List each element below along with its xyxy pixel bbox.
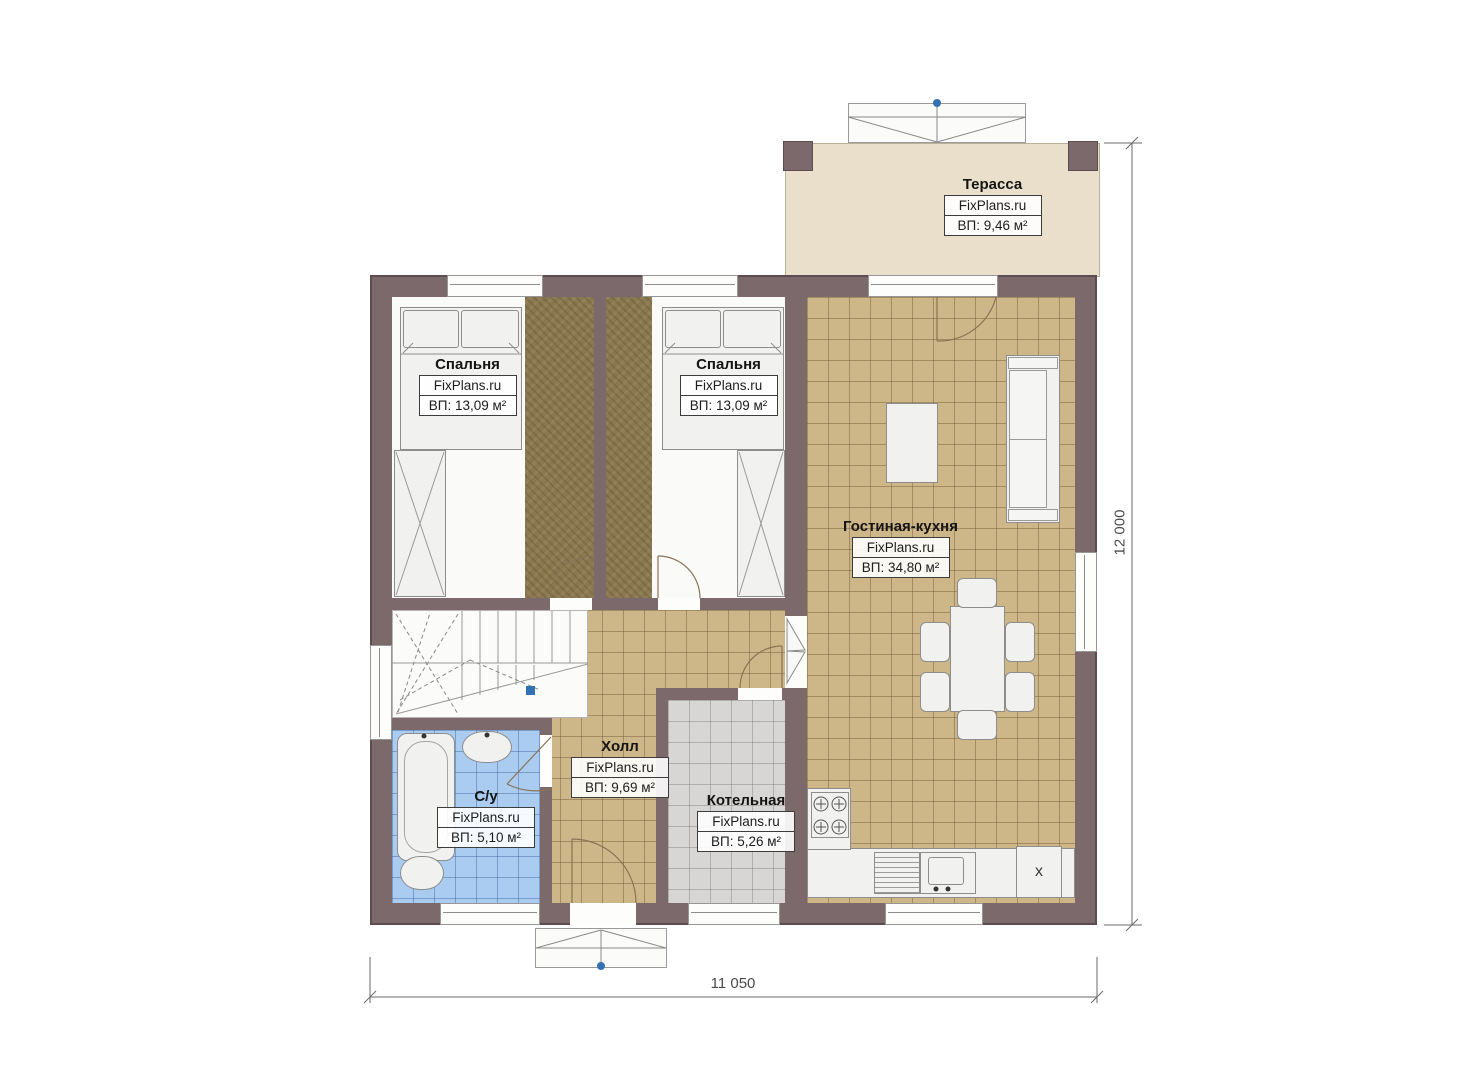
terrace-post-left <box>783 141 813 171</box>
room-label-bedroom2: Спальня FixPlans.ru ВП: 13,09 м² <box>666 356 791 416</box>
brand-link[interactable]: FixPlans.ru <box>853 538 949 558</box>
entrance-steps <box>535 928 667 968</box>
pillow <box>665 310 721 348</box>
room-label-box: FixPlans.ru ВП: 9,46 м² <box>944 195 1042 236</box>
room-area: ВП: 9,46 м² <box>945 216 1041 235</box>
pillow <box>403 310 459 348</box>
room-label-terrace: Терасса FixPlans.ru ВП: 9,46 м² <box>930 176 1055 236</box>
window-living-right <box>1075 552 1097 652</box>
wardrobe-1 <box>394 450 446 597</box>
wall-boiler-left <box>656 700 668 903</box>
pillow <box>723 310 781 348</box>
stove <box>811 792 849 838</box>
room-label-box: FixPlans.ru ВП: 34,80 м² <box>852 537 950 578</box>
room-label-box: FixPlans.ru ВП: 9,69 м² <box>571 757 669 798</box>
dining-chair <box>957 578 997 608</box>
room-label-bedroom1: Спальня FixPlans.ru ВП: 13,09 м² <box>405 356 530 416</box>
dining-table <box>950 606 1005 712</box>
entrance-door-opening <box>570 903 636 925</box>
room-name: Спальня <box>696 356 761 373</box>
sink-bowl <box>928 857 964 885</box>
brand-link[interactable]: FixPlans.ru <box>698 812 794 832</box>
dining-chair <box>957 710 997 740</box>
room-label-boiler: Котельная FixPlans.ru ВП: 5,26 м² <box>690 792 802 852</box>
dining-chair <box>1005 622 1035 662</box>
room-name: Гостиная-кухня <box>843 518 958 535</box>
sofa-armrest <box>1008 357 1058 369</box>
room-name: Котельная <box>707 792 786 809</box>
toilet <box>400 856 444 890</box>
room-label-bathroom: С/у FixPlans.ru ВП: 5,10 м² <box>432 788 540 848</box>
window-bedroom1 <box>447 275 543 297</box>
window-bathroom-south <box>440 903 540 925</box>
room-area: ВП: 5,26 м² <box>698 832 794 851</box>
brand-link[interactable]: FixPlans.ru <box>681 376 777 396</box>
brand-link[interactable]: FixPlans.ru <box>945 196 1041 216</box>
dimension-height: 12 000 <box>1112 493 1129 573</box>
room-label-box: FixPlans.ru ВП: 5,26 м² <box>697 811 795 852</box>
dimension-width: 11 050 <box>660 975 806 992</box>
fridge-mark: x <box>1035 863 1043 881</box>
door-opening-bedroom1 <box>550 598 592 610</box>
dining-chair <box>920 672 950 712</box>
wall-bathroom-top <box>392 718 552 730</box>
room-label-hall: Холл FixPlans.ru ВП: 9,69 м² <box>560 738 680 798</box>
door-opening-boiler <box>738 688 782 700</box>
room-area: ВП: 13,09 м² <box>681 396 777 415</box>
wall-bedrooms-hall <box>392 598 807 610</box>
brand-link[interactable]: FixPlans.ru <box>438 808 534 828</box>
fridge: x <box>1016 846 1062 898</box>
dining-chair <box>920 622 950 662</box>
terrace-post-right <box>1068 141 1098 171</box>
brand-link[interactable]: FixPlans.ru <box>572 758 668 778</box>
room-label-box: FixPlans.ru ВП: 13,09 м² <box>680 375 778 416</box>
room-name: Спальня <box>435 356 500 373</box>
wardrobe-2 <box>737 450 785 597</box>
dining-chair <box>1005 672 1035 712</box>
room-area: ВП: 34,80 м² <box>853 558 949 577</box>
window-bedroom2 <box>642 275 738 297</box>
window-boiler-south <box>688 903 780 925</box>
drainboard <box>874 852 920 894</box>
wall-bedroom-partition <box>594 297 606 598</box>
window-stairs-left <box>370 645 392 740</box>
door-opening-hall-living <box>785 616 807 688</box>
terrace-steps <box>848 103 1026 143</box>
sofa <box>1006 355 1060 523</box>
brand-link[interactable]: FixPlans.ru <box>420 376 516 396</box>
room-area: ВП: 13,09 м² <box>420 396 516 415</box>
bathroom-sink <box>462 731 512 763</box>
room-name: Терасса <box>963 176 1022 193</box>
room-label-box: FixPlans.ru ВП: 13,09 м² <box>419 375 517 416</box>
staircase-area <box>392 610 588 718</box>
terrace-door-opening <box>868 275 998 297</box>
door-opening-bedroom2 <box>658 598 700 610</box>
room-area: ВП: 5,10 м² <box>438 828 534 847</box>
window-kitchen-south <box>885 903 983 925</box>
room-name: С/у <box>474 788 497 805</box>
floor-plan: x <box>0 0 1474 1080</box>
room-label-living: Гостиная-кухня FixPlans.ru ВП: 34,80 м² <box>828 518 973 578</box>
tv-stand <box>886 403 938 483</box>
room-label-box: FixPlans.ru ВП: 5,10 м² <box>437 807 535 848</box>
room-name: Холл <box>601 738 639 755</box>
sofa-armrest <box>1008 509 1058 521</box>
door-opening-bathroom <box>540 735 552 787</box>
sofa-seat <box>1009 370 1047 508</box>
room-area: ВП: 9,69 м² <box>572 778 668 797</box>
pillow <box>461 310 519 348</box>
